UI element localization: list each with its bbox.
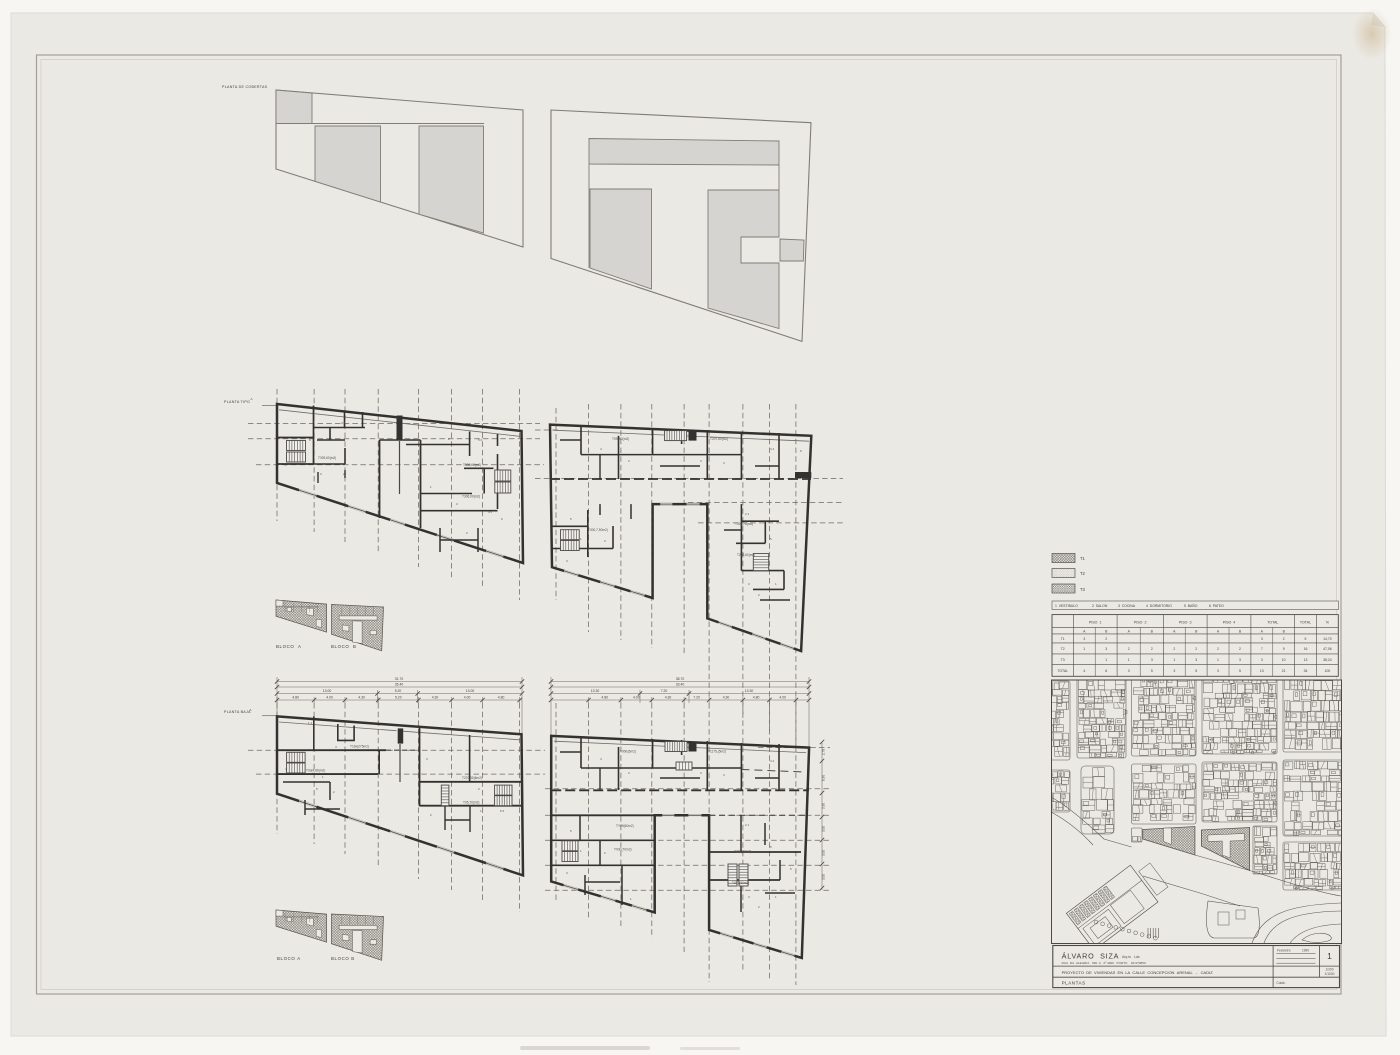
svg-text:3.00: 3.00	[822, 826, 826, 832]
svg-text:PISO 4: PISO 4	[1223, 621, 1236, 625]
svg-text:BLOCO B: BLOCO B	[331, 644, 357, 649]
svg-text:3: 3	[1217, 669, 1219, 673]
svg-text:3: 3	[1195, 658, 1197, 662]
svg-text:5 BAÑO: 5 BAÑO	[1184, 603, 1198, 608]
svg-text:35.40: 35.40	[395, 683, 404, 687]
svg-text:3: 3	[1105, 647, 1107, 651]
svg-text:2: 2	[1283, 637, 1285, 641]
svg-text:3 COCINA: 3 COCINA	[1118, 604, 1136, 608]
svg-text:3.00: 3.00	[822, 850, 826, 856]
svg-text:T1: T1	[1061, 637, 1065, 641]
svg-text:4.80: 4.80	[292, 696, 299, 700]
svg-text:PROYECTO DE VIVIENDAS EN L: PROYECTO DE VIVIENDAS EN LA CALLE CONCEP…	[1062, 970, 1214, 975]
svg-text:4.30: 4.30	[723, 696, 730, 700]
svg-text:PISO 2: PISO 2	[1134, 621, 1147, 625]
svg-text:T309,60(m2): T309,60(m2)	[318, 456, 336, 460]
svg-text:4 4: 4 4	[770, 447, 775, 451]
svg-text:T1: T1	[1080, 556, 1086, 561]
svg-text:2: 2	[1151, 647, 1153, 651]
svg-text:T99x80(m2): T99x80(m2)	[612, 437, 629, 441]
svg-text:RUA DA ALEGRIA 399 A 2º: RUA DA ALEGRIA 399 A 2º 4000 PORTO 02-57…	[1062, 961, 1146, 965]
svg-text:Fevereiro: Fevereiro	[1277, 949, 1291, 953]
svg-text:5 6: 5 6	[500, 809, 505, 813]
svg-text:A: A	[251, 397, 253, 401]
svg-text:3.30: 3.30	[822, 803, 826, 809]
svg-text:4.80: 4.80	[601, 696, 608, 700]
svg-text:4.00: 4.00	[779, 696, 786, 700]
svg-text:1 VESTIBULO: 1 VESTIBULO	[1055, 604, 1078, 608]
svg-text:1: 1	[1128, 658, 1130, 662]
svg-text:1/1000: 1/1000	[1325, 972, 1335, 976]
svg-text:TOTAL: TOTAL	[1267, 621, 1278, 625]
svg-text:3: 3	[1261, 637, 1263, 641]
svg-text:7.20: 7.20	[661, 689, 668, 693]
svg-text:21: 21	[1282, 669, 1286, 673]
svg-text:1: 1	[1217, 658, 1219, 662]
svg-text:4.00: 4.00	[464, 696, 471, 700]
svg-text:TOTAL: TOTAL	[1300, 621, 1311, 625]
svg-text:4.80: 4.80	[498, 696, 505, 700]
svg-text:5.20: 5.20	[395, 689, 402, 693]
svg-text:2: 2	[1173, 647, 1175, 651]
svg-text:3: 3	[1261, 658, 1263, 662]
svg-text:T206(60m2): T206(60m2)	[734, 850, 751, 854]
svg-text:38,24: 38,24	[1323, 658, 1332, 662]
svg-text:BLOCO A: BLOCO A	[277, 956, 301, 961]
svg-text:10: 10	[1282, 658, 1286, 662]
svg-text:5.20: 5.20	[395, 696, 402, 700]
svg-text:5: 5	[1305, 637, 1307, 641]
svg-text:PLANTAS: PLANTAS	[1062, 981, 1086, 986]
svg-text:Arq.to Lda: Arq.to Lda	[1122, 955, 1140, 959]
svg-text:13.30: 13.30	[591, 689, 600, 693]
svg-text:4.00: 4.00	[633, 696, 640, 700]
svg-text:2: 2	[1239, 647, 1241, 651]
svg-text:3.00: 3.00	[822, 874, 826, 880]
svg-text:T207,35(6m2): T207,35(6m2)	[462, 776, 482, 780]
svg-text:5 6: 5 6	[478, 438, 483, 442]
svg-text:4 5: 4 5	[488, 510, 493, 514]
svg-text:ÁLVARO SIZA: ÁLVARO SIZA	[1062, 952, 1120, 961]
svg-text:4.00: 4.00	[326, 696, 333, 700]
svg-text:14,70: 14,70	[1323, 637, 1332, 641]
svg-text:T309,75(m2): T309,75(m2)	[735, 522, 753, 526]
svg-text:PLANTA DE COBERTAS: PLANTA DE COBERTAS	[222, 85, 268, 89]
svg-text:1: 1	[1173, 658, 1175, 662]
svg-text:BLOCO A: BLOCO A	[276, 644, 302, 649]
svg-text:7: 7	[1261, 647, 1263, 651]
svg-text:T03(4,86(m2): T03(4,86(m2)	[306, 769, 325, 773]
svg-text:T3: T3	[1080, 587, 1086, 592]
svg-text:4: 4	[1083, 669, 1085, 673]
svg-text:BLOCO B: BLOCO B	[331, 956, 355, 961]
svg-text:T2: T2	[1061, 647, 1065, 651]
svg-text:4.30: 4.30	[432, 696, 439, 700]
svg-text:T05,70(m2): T05,70(m2)	[463, 801, 479, 805]
svg-text:2: 2	[1195, 647, 1197, 651]
svg-text:5: 5	[1239, 669, 1241, 673]
svg-text:1 1: 1 1	[308, 721, 313, 725]
svg-text:5: 5	[1195, 669, 1197, 673]
svg-text:13.00: 13.00	[323, 689, 332, 693]
svg-text:13.00: 13.00	[466, 689, 475, 693]
svg-text:1/200: 1/200	[1326, 968, 1334, 972]
svg-text:6: 6	[1105, 669, 1107, 673]
svg-text:3: 3	[1173, 669, 1175, 673]
svg-text:2: 2	[1128, 647, 1130, 651]
svg-text:2.78: 2.78	[822, 749, 826, 755]
svg-text:T1175,(5m2): T1175,(5m2)	[708, 750, 726, 754]
svg-text:33.40: 33.40	[676, 683, 685, 687]
svg-text:PLANTA TIPO: PLANTA TIPO	[224, 400, 250, 404]
svg-text:16: 16	[1304, 647, 1308, 651]
svg-text:3: 3	[1128, 669, 1130, 673]
svg-text:3: 3	[1239, 658, 1241, 662]
svg-text:2 1: 2 1	[745, 823, 750, 827]
svg-text:4 DORMITORIO: 4 DORMITORIO	[1146, 604, 1172, 608]
svg-text:T207(60m2): T207(60m2)	[732, 881, 749, 885]
svg-text:5: 5	[1151, 669, 1153, 673]
svg-text:2 1: 2 1	[745, 512, 750, 516]
svg-text:4 5: 4 5	[341, 421, 346, 425]
svg-text:4.30: 4.30	[358, 696, 365, 700]
svg-text:6.30: 6.30	[822, 775, 826, 781]
svg-text:T306,00(m2): T306,00(m2)	[462, 495, 480, 499]
svg-text:TOTAL: TOTAL	[1057, 669, 1068, 673]
svg-text:2 SALON: 2 SALON	[1092, 604, 1108, 608]
svg-text:4.80: 4.80	[753, 696, 760, 700]
svg-text:100: 100	[1325, 669, 1331, 673]
svg-text:1: 1	[1327, 951, 1332, 961]
svg-text:13: 13	[1304, 658, 1308, 662]
svg-text:TY09(60m2): TY09(60m2)	[616, 824, 634, 828]
svg-text:4.30: 4.30	[665, 696, 672, 700]
svg-text:T207,80(m2): T207,80(m2)	[710, 437, 728, 441]
svg-text:9: 9	[1283, 647, 1285, 651]
svg-text:2: 2	[1217, 647, 1219, 651]
svg-text:34: 34	[1304, 669, 1308, 673]
svg-text:T2: T2	[1080, 571, 1086, 576]
svg-text:4 4: 4 4	[770, 759, 775, 763]
svg-text:38.70: 38.70	[676, 677, 685, 681]
svg-text:13.30: 13.30	[745, 689, 754, 693]
svg-text:T308,60(m2): T308,60(m2)	[463, 463, 481, 467]
svg-text:T298,60(m2): T298,60(m2)	[737, 553, 755, 557]
svg-text:3: 3	[1083, 637, 1085, 641]
svg-text:7.20: 7.20	[693, 696, 700, 700]
svg-text:3: 3	[1151, 658, 1153, 662]
svg-text:T90E(5m2): T90E(5m2)	[620, 750, 636, 754]
svg-text:31.70: 31.70	[395, 677, 404, 681]
svg-text:PLANTA BAJA: PLANTA BAJA	[224, 710, 251, 714]
svg-text:13: 13	[1260, 669, 1264, 673]
svg-text:1: 1	[1105, 658, 1107, 662]
svg-text:T300,7,50m2): T300,7,50m2)	[588, 528, 608, 532]
svg-text:T%8,(70m2): T%8,(70m2)	[614, 848, 632, 852]
svg-text:6 PATEO: 6 PATEO	[1209, 604, 1224, 608]
svg-text:PISO 1: PISO 1	[1089, 621, 1102, 625]
svg-text:T16x(275m2): T16x(275m2)	[350, 745, 369, 749]
svg-text:2: 2	[1105, 637, 1107, 641]
svg-text:T3: T3	[1061, 658, 1065, 662]
svg-text:47,06: 47,06	[1323, 647, 1332, 651]
svg-text:1: 1	[1083, 647, 1085, 651]
svg-text:Colab.: Colab.	[1276, 981, 1285, 985]
svg-text:1990: 1990	[1302, 949, 1309, 953]
svg-text:PISO 3: PISO 3	[1179, 621, 1192, 625]
